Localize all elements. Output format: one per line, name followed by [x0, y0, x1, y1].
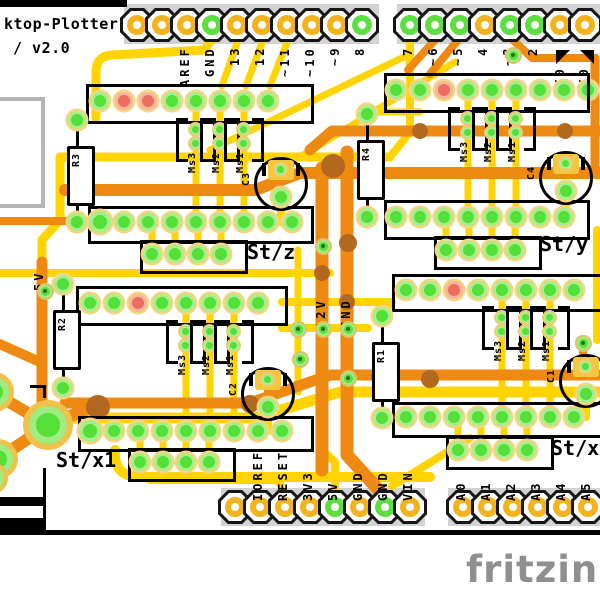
- stepper-header-label-x1: St/x1: [56, 448, 116, 472]
- stepper-header-x1-pad-3[interactable]: [200, 453, 218, 471]
- components-layer: ktop-Plotter / v2.0 5V 12V GND TX0 RX0 f…: [0, 0, 600, 600]
- pin-label-vin: VIN: [402, 439, 418, 501]
- capacitor-label-c3: C3: [242, 172, 258, 202]
- capacitor-label-c4: C4: [527, 166, 543, 196]
- fritzing-watermark: fritzing: [466, 548, 600, 591]
- driver-z-bottom-header-pad-7[interactable]: [259, 213, 277, 231]
- stepper-header-label-y: St/y: [540, 232, 588, 256]
- resistor-pad-top[interactable]: [358, 105, 376, 123]
- via[interactable]: [577, 337, 590, 350]
- rx-arrow-icon: [580, 50, 594, 64]
- board-edge-top: [0, 0, 127, 7]
- driver-y-bottom-header-pad-7[interactable]: [555, 208, 573, 226]
- jumper-x2-ms1-pad-1[interactable]: [544, 326, 555, 337]
- driver-x2-top-header-pad-3[interactable]: [469, 281, 487, 299]
- driver-z-bottom-header-pad-2[interactable]: [139, 213, 157, 231]
- jumper-x2-ms1-pad-0[interactable]: [544, 312, 555, 323]
- jumper-bracket-right: [242, 320, 254, 364]
- driver-x2-top-header-pad-2[interactable]: [445, 281, 463, 299]
- large-pad[interactable]: [29, 406, 67, 444]
- stepper-header-y-pad-1[interactable]: [460, 241, 478, 259]
- jumper-x1-ms1-pad-1[interactable]: [228, 340, 239, 351]
- driver-x2-bottom-header-pad-0[interactable]: [397, 408, 415, 426]
- resistor-pad-bottom[interactable]: [54, 379, 72, 397]
- stepper-header-z-pad-0[interactable]: [143, 245, 161, 263]
- driver-y-bottom-header-pad-6[interactable]: [531, 208, 549, 226]
- jumper-z-ms1-pad-1[interactable]: [238, 138, 249, 149]
- capacitor-tick-left: [262, 163, 266, 176]
- stepper-header-label-x2: St/x: [551, 436, 599, 460]
- board-edge-bottom: [0, 530, 600, 535]
- pin-label-gnd: GND: [377, 439, 393, 501]
- driver-x1-top-header-pad-6[interactable]: [225, 294, 243, 312]
- driver-y-top-header-pad-4[interactable]: [483, 81, 501, 99]
- driver-x1-bottom-header-pad-3[interactable]: [153, 422, 171, 440]
- jumper-y-ms1-pad-0[interactable]: [510, 113, 521, 124]
- driver-x2-bottom-header-pad-6[interactable]: [541, 408, 559, 426]
- capacitor-pad-top[interactable]: [275, 164, 286, 175]
- driver-z-top-header-pad-2[interactable]: [139, 92, 157, 110]
- driver-x1-bottom-header-pad-4[interactable]: [177, 422, 195, 440]
- resistor-label-r3: R3: [72, 153, 88, 193]
- driver-z-bottom-header-pad-4[interactable]: [187, 213, 205, 231]
- driver-z-top-header-pad-5[interactable]: [211, 92, 229, 110]
- driver-y-top-header-pad-5[interactable]: [507, 81, 525, 99]
- barrel-jack-bar-2[interactable]: [0, 518, 44, 531]
- driver-x1-bottom-header-pad-2[interactable]: [129, 422, 147, 440]
- driver-y-top-header-pad-0[interactable]: [387, 81, 405, 99]
- driver-z-bottom-header-pad-3[interactable]: [163, 213, 181, 231]
- capacitor-tick-right: [296, 163, 300, 176]
- stepper-header-x1-pad-1[interactable]: [154, 453, 172, 471]
- driver-x1-bottom-header-pad-6[interactable]: [225, 422, 243, 440]
- driver-y-bottom-header-pad-5[interactable]: [507, 208, 525, 226]
- capacitor-pad-bottom[interactable]: [557, 182, 575, 200]
- resistor-pad-top[interactable]: [68, 111, 86, 129]
- stepper-header-x2-pad-0[interactable]: [449, 441, 467, 459]
- capacitor-tick-right: [283, 373, 287, 386]
- capacitor-pad-bottom[interactable]: [577, 385, 595, 403]
- driver-x1-bottom-header-pad-5[interactable]: [201, 422, 219, 440]
- driver-z-bottom-header-pad-1[interactable]: [115, 213, 133, 231]
- board-title-line1: ktop-Plotter: [4, 15, 118, 33]
- jumper-z-ms1-pad-0[interactable]: [238, 124, 249, 135]
- digital_left-pin-9[interactable]: [345, 8, 379, 42]
- driver-z-bottom-header-pad-5[interactable]: [211, 213, 229, 231]
- via[interactable]: [39, 285, 52, 298]
- capacitor-tick-right: [581, 157, 585, 170]
- driver-y-bottom-header-pad-3[interactable]: [459, 208, 477, 226]
- driver-x1-bottom-header-pad-8[interactable]: [273, 422, 291, 440]
- driver-x1-bottom-header-pad-0[interactable]: [79, 420, 101, 442]
- stepper-header-x2-pad-1[interactable]: [472, 441, 490, 459]
- stepper-header-y-pad-2[interactable]: [483, 241, 501, 259]
- driver-x2-bottom-header-pad-7[interactable]: [565, 408, 583, 426]
- pin-label-~9: ~9: [329, 46, 345, 106]
- driver-x2-bottom-header-pad-5[interactable]: [517, 408, 535, 426]
- driver-x2-bottom-header-pad-3[interactable]: [469, 408, 487, 426]
- jumper-y-ms1-pad-1[interactable]: [510, 127, 521, 138]
- stepper-header-label-z: St/z: [247, 240, 295, 264]
- driver-z-top-header-pad-4[interactable]: [187, 92, 205, 110]
- driver-x2-top-header-pad-4[interactable]: [493, 281, 511, 299]
- driver-x1-top-header-pad-2[interactable]: [129, 294, 147, 312]
- capacitor-label-c2: C2: [229, 382, 245, 412]
- resistor-pad-top[interactable]: [54, 275, 72, 293]
- driver-y-top-header-pad-2[interactable]: [435, 81, 453, 99]
- via[interactable]: [317, 323, 330, 336]
- driver-x2-top-header-pad-1[interactable]: [421, 281, 439, 299]
- driver-x2-bottom-header-pad-2[interactable]: [445, 408, 463, 426]
- resistor-pad-bottom[interactable]: [373, 409, 391, 427]
- driver-z-top-header-pad-1[interactable]: [115, 92, 133, 110]
- resistor-label-r1: R1: [377, 349, 393, 389]
- jumper-x1-ms1-pad-0[interactable]: [228, 326, 239, 337]
- stepper-header-z-pad-2[interactable]: [189, 245, 207, 263]
- driver-z-bottom-header-pad-0[interactable]: [89, 211, 111, 233]
- driver-y-bottom-header-pad-0[interactable]: [387, 208, 405, 226]
- driver-y-top-header-pad-7[interactable]: [555, 81, 573, 99]
- resistor-label-r4: R4: [362, 147, 378, 187]
- capacitor-tick-left: [249, 373, 253, 386]
- tx-arrow-icon: [556, 50, 570, 64]
- resistor-pad-top[interactable]: [373, 307, 391, 325]
- capacitor-pad-top[interactable]: [580, 361, 591, 372]
- jumper-bracket-right: [558, 306, 570, 350]
- via[interactable]: [292, 323, 305, 336]
- driver-x1-top-header-pad-3[interactable]: [153, 294, 171, 312]
- stepper-header-z-pad-1[interactable]: [166, 245, 184, 263]
- capacitor-tick-left: [547, 157, 551, 170]
- driver-z-top-header-pad-3[interactable]: [163, 92, 181, 110]
- stepper-header-x2-pad-3[interactable]: [518, 441, 536, 459]
- driver-x2-top-header-pad-0[interactable]: [397, 281, 415, 299]
- capacitor-label-c1: C1: [547, 369, 563, 399]
- barrel-jack-edge: [43, 468, 46, 530]
- capacitor-pad-bottom[interactable]: [259, 398, 277, 416]
- jumper-bracket-right: [524, 107, 536, 151]
- driver-z-bottom-header-pad-8[interactable]: [283, 213, 301, 231]
- capacitor-pad-top[interactable]: [262, 374, 273, 385]
- driver-x1-top-header-pad-1[interactable]: [105, 294, 123, 312]
- driver-x1-top-header-pad-0[interactable]: [81, 294, 99, 312]
- driver-y-bottom-header-pad-4[interactable]: [483, 208, 501, 226]
- driver-x2-top-header-pad-7[interactable]: [565, 281, 583, 299]
- driver-y-bottom-header-pad-2[interactable]: [435, 208, 453, 226]
- jumper-bracket-right: [252, 118, 264, 162]
- resistor-pad-bottom[interactable]: [358, 208, 376, 226]
- via[interactable]: [294, 353, 307, 366]
- driver-z-top-header-pad-6[interactable]: [235, 92, 253, 110]
- via[interactable]: [317, 240, 330, 253]
- large-pad[interactable]: [0, 444, 13, 474]
- driver-x2-bottom-header-pad-4[interactable]: [493, 408, 511, 426]
- driver-z-top-header-pad-7[interactable]: [259, 92, 277, 110]
- driver-x1-top-header-pad-7[interactable]: [249, 294, 267, 312]
- driver-z-bottom-header-pad-6[interactable]: [235, 213, 253, 231]
- driver-x1-bottom-header-pad-7[interactable]: [249, 422, 267, 440]
- driver-x1-bottom-header-pad-1[interactable]: [105, 422, 123, 440]
- jumper-label-ms1: Ms1: [508, 141, 524, 177]
- digital_right-pin-7[interactable]: [568, 8, 600, 42]
- capacitor-tick-left: [567, 360, 571, 373]
- capacitor-pad-top[interactable]: [560, 158, 571, 169]
- stepper-header-z-pad-3[interactable]: [212, 245, 230, 263]
- pin-label-gnd: GND: [352, 439, 368, 501]
- driver-z-top-header-pad-0[interactable]: [91, 92, 109, 110]
- resistor-label-r2: R2: [58, 317, 74, 357]
- stepper-header-x1-pad-0[interactable]: [131, 453, 149, 471]
- large-pad[interactable]: [0, 377, 9, 407]
- driver-y-top-header-pad-3[interactable]: [459, 81, 477, 99]
- driver-x2-bottom-header-pad-1[interactable]: [421, 408, 439, 426]
- via[interactable]: [507, 49, 520, 62]
- driver-y-bottom-header-pad-1[interactable]: [411, 208, 429, 226]
- via[interactable]: [342, 323, 355, 336]
- stepper-header-x2-pad-2[interactable]: [495, 441, 513, 459]
- pcb-canvas: ktop-Plotter / v2.0 5V 12V GND TX0 RX0 f…: [0, 0, 600, 600]
- stepper-header-y-pad-0[interactable]: [437, 241, 455, 259]
- driver-x2-top-header-pad-6[interactable]: [541, 281, 559, 299]
- driver-y-top-header-pad-6[interactable]: [531, 81, 549, 99]
- via[interactable]: [342, 372, 355, 385]
- barrel-jack-bar-1[interactable]: [0, 497, 44, 506]
- corner-mark-v: [43, 385, 46, 398]
- board-title-line2: / v2.0: [13, 39, 70, 57]
- capacitor-pad-bottom[interactable]: [272, 188, 290, 206]
- stepper-header-x1-pad-2[interactable]: [177, 453, 195, 471]
- driver-y-top-header-pad-1[interactable]: [411, 81, 429, 99]
- resistor-pad-bottom[interactable]: [68, 213, 86, 231]
- pin-label-8: 8: [354, 46, 370, 106]
- driver-x2-top-header-pad-5[interactable]: [517, 281, 535, 299]
- driver-x1-top-header-pad-4[interactable]: [177, 294, 195, 312]
- pin-label-5v: 5V: [327, 439, 343, 501]
- usb-connector-outline[interactable]: [0, 97, 45, 208]
- stepper-header-y-pad-3[interactable]: [506, 241, 524, 259]
- driver-x1-top-header-pad-5[interactable]: [201, 294, 219, 312]
